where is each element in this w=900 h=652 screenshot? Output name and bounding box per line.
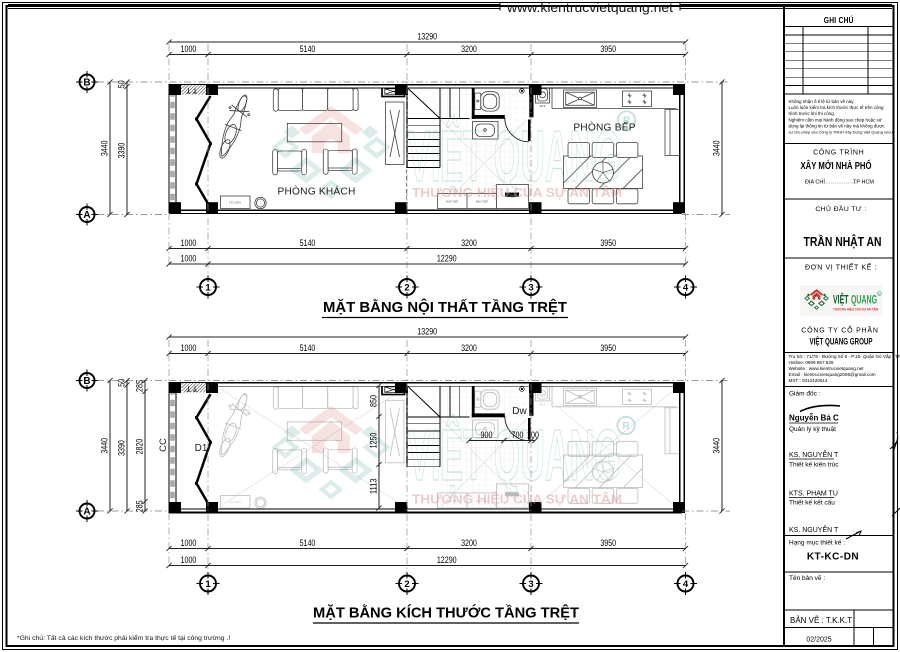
svg-text:MẶT BẰNG KÍCH THƯỚC TẦNG TRỆT: MẶT BẰNG KÍCH THƯỚC TẦNG TRỆT <box>313 604 579 622</box>
svg-text:B: B <box>83 78 90 89</box>
svg-text:12290: 12290 <box>437 254 457 264</box>
svg-text:4: 4 <box>683 579 689 590</box>
svg-text:5140: 5140 <box>300 238 316 248</box>
svg-text:1000: 1000 <box>181 555 197 565</box>
svg-text:13290: 13290 <box>417 32 437 42</box>
svg-text:CC: CC <box>158 438 169 452</box>
svg-text:trình trước khi thi công.: trình trước khi thi công. <box>789 111 835 116</box>
svg-text:3440: 3440 <box>712 140 722 156</box>
svg-text:www.kientrucvietquang.net: www.kientrucvietquang.net <box>506 1 674 15</box>
svg-text:1: 1 <box>205 579 211 590</box>
svg-text:MLR: MLR <box>539 105 545 108</box>
svg-text:1000: 1000 <box>181 44 197 54</box>
svg-text:3390: 3390 <box>117 440 127 456</box>
svg-text:KTS. PHẠM TU: KTS. PHẠM TU <box>789 491 838 498</box>
svg-text:850: 850 <box>369 395 379 407</box>
svg-text:2: 2 <box>404 282 409 293</box>
svg-text:sự cho phép của Công ty TNHH X: sự cho phép của Công ty TNHH Xây Dựng Vi… <box>789 130 895 135</box>
svg-text:3950: 3950 <box>600 538 616 548</box>
svg-text:KS. NGUYỄN T: KS. NGUYỄN T <box>789 525 839 534</box>
svg-text:THƯƠNG HIỆU CỦA SỰ AN TÂM: THƯƠNG HIỆU CỦA SỰ AN TÂM <box>833 307 878 312</box>
svg-text:Quản lý kỹ thuật: Quản lý kỹ thuật <box>789 426 836 433</box>
svg-text:13290: 13290 <box>417 327 437 337</box>
svg-text:Tên bản vẽ :: Tên bản vẽ : <box>789 575 825 582</box>
svg-text:1: 1 <box>205 282 211 293</box>
svg-text:A: A <box>83 210 90 221</box>
svg-text:Thiết kế kết cấu: Thiết kế kết cấu <box>789 498 835 507</box>
svg-text:100: 100 <box>527 430 539 440</box>
svg-text:12290: 12290 <box>437 555 457 565</box>
svg-text:PHÒNG BẾP: PHÒNG BẾP <box>573 121 635 134</box>
svg-text:3440: 3440 <box>100 140 110 156</box>
svg-text:3390: 3390 <box>117 143 127 159</box>
svg-text:5140: 5140 <box>300 44 316 54</box>
svg-text:VIỆT: VIỆT <box>833 294 849 307</box>
svg-text:Giám đốc :: Giám đốc : <box>789 389 821 398</box>
svg-text:Nghiêm cấm mọi hành động sao c: Nghiêm cấm mọi hành động sao chép hoặc s… <box>789 116 882 122</box>
svg-text:Website : www.kientrucvietquan: Website : www.kientrucvietquang.net <box>789 366 865 371</box>
svg-text:TP HCM: TP HCM <box>853 180 874 186</box>
svg-text:TRẦN NHẬT AN: TRẦN NHẬT AN <box>804 234 882 249</box>
svg-text:GHI CHÚ: GHI CHÚ <box>824 16 854 25</box>
svg-text:1000: 1000 <box>181 238 197 248</box>
svg-text:Email : kientrucvietquang2006@: Email : kientrucvietquang2006@gmail.com <box>789 372 876 377</box>
svg-text:*Ghi chú: Tất cả các kích thướ: *Ghi chú: Tất cả các kích thước phải kiể… <box>17 633 230 642</box>
svg-text:4: 4 <box>683 282 689 293</box>
svg-text:3440: 3440 <box>100 438 110 454</box>
svg-text:1000: 1000 <box>181 538 197 548</box>
svg-text:3200: 3200 <box>461 238 477 248</box>
svg-text:Hotline: 0909 857 629: Hotline: 0909 857 629 <box>789 360 834 365</box>
svg-text:XÂY MỚI NHÀ PHỐ: XÂY MỚI NHÀ PHỐ <box>801 158 872 172</box>
svg-text:285: 285 <box>135 380 145 392</box>
svg-text:VIỆT QUANG GROUP: VIỆT QUANG GROUP <box>810 336 873 348</box>
svg-text:3950: 3950 <box>600 44 616 54</box>
svg-text:TỦ GIÀY: TỦ GIÀY <box>229 200 242 205</box>
svg-text:1000: 1000 <box>181 343 197 353</box>
svg-text:BÀN THỜ: BÀN THỜ <box>446 200 459 203</box>
svg-text:2820: 2820 <box>135 439 145 455</box>
svg-text:R: R <box>622 421 630 432</box>
svg-text:3200: 3200 <box>461 343 477 353</box>
svg-text:KS. NGUYỄN T: KS. NGUYỄN T <box>789 450 839 459</box>
svg-text:A: A <box>83 507 90 518</box>
svg-text:3440: 3440 <box>712 438 722 454</box>
svg-text:VIỆT QUANG: VIỆT QUANG <box>408 415 621 496</box>
svg-text:Trụ Sở : 71/78 - Đường Số 6 -: Trụ Sở : 71/78 - Đường Số 6 - P.15- Quận… <box>789 353 900 359</box>
svg-text:285: 285 <box>135 500 145 512</box>
svg-text:ĐỊA CHỈ: ĐỊA CHỈ <box>805 179 825 186</box>
svg-text:3: 3 <box>528 579 533 590</box>
svg-text:THƯƠNG HIỆU CỦA SỰ AN TÂM: THƯƠNG HIỆU CỦA SỰ AN TÂM <box>412 492 622 507</box>
svg-text:PHÒNG KHÁCH: PHÒNG KHÁCH <box>277 185 355 198</box>
svg-text:D1: D1 <box>195 443 208 454</box>
svg-text:MLR: MLR <box>539 403 545 406</box>
svg-text:dụng lại thông tin từ bản vẽ n: dụng lại thông tin từ bản vẽ này mà khôn… <box>789 123 886 128</box>
svg-text:CÔNG TRÌNH: CÔNG TRÌNH <box>813 148 864 157</box>
svg-text:BẢN VẼ : T.K.K.T: BẢN VẼ : T.K.K.T <box>790 616 852 625</box>
svg-text:Thiết kế kiến trúc: Thiết kế kiến trúc <box>789 460 839 469</box>
svg-text:QUANG: QUANG <box>851 295 877 307</box>
svg-text:Dw: Dw <box>512 406 527 417</box>
svg-text:KT-KC-DN: KT-KC-DN <box>807 552 859 563</box>
svg-text:MST : 0312420614: MST : 0312420614 <box>789 378 828 383</box>
svg-text:2: 2 <box>404 579 409 590</box>
svg-text:02/2025: 02/2025 <box>806 637 831 644</box>
svg-text:3950: 3950 <box>600 238 616 248</box>
svg-text:50: 50 <box>117 379 127 387</box>
svg-text:900: 900 <box>481 430 493 440</box>
svg-text:700: 700 <box>512 430 524 440</box>
svg-text:TỦ GIÀY: TỦ GIÀY <box>229 499 242 504</box>
svg-text:1250: 1250 <box>369 433 379 449</box>
svg-text:3200: 3200 <box>461 538 477 548</box>
svg-text:1000: 1000 <box>181 254 197 264</box>
svg-text:5140: 5140 <box>300 343 316 353</box>
svg-text:50: 50 <box>117 80 127 88</box>
svg-text:Luôn luôn kiểm tra kích thước: Luôn luôn kiểm tra kích thước thực tế tr… <box>789 104 885 110</box>
svg-text:THƯƠNG HIỆU CỦA SỰ AN TÂM: THƯƠNG HIỆU CỦA SỰ AN TÂM <box>412 185 622 200</box>
svg-text:3950: 3950 <box>600 343 616 353</box>
svg-text:3: 3 <box>528 282 533 293</box>
svg-text:Không nhận ố tỉ lệ từ bản vẽ n: Không nhận ố tỉ lệ từ bản vẽ này. <box>789 98 855 104</box>
svg-text:R: R <box>878 292 880 296</box>
svg-text:5140: 5140 <box>300 538 316 548</box>
svg-text:Hạng mục thiết kế :: Hạng mục thiết kế : <box>789 538 845 547</box>
svg-text:3200: 3200 <box>461 44 477 54</box>
svg-text:MẶT BẰNG NỘI THẤT TẦNG TRỆT: MẶT BẰNG NỘI THẤT TẦNG TRỆT <box>323 298 567 316</box>
svg-text:BÀN THỜ: BÀN THỜ <box>476 200 489 203</box>
svg-text:Nguyễn Bá C: Nguyễn Bá C <box>789 414 839 423</box>
svg-text:1113: 1113 <box>369 478 379 494</box>
svg-text:B: B <box>83 376 90 387</box>
